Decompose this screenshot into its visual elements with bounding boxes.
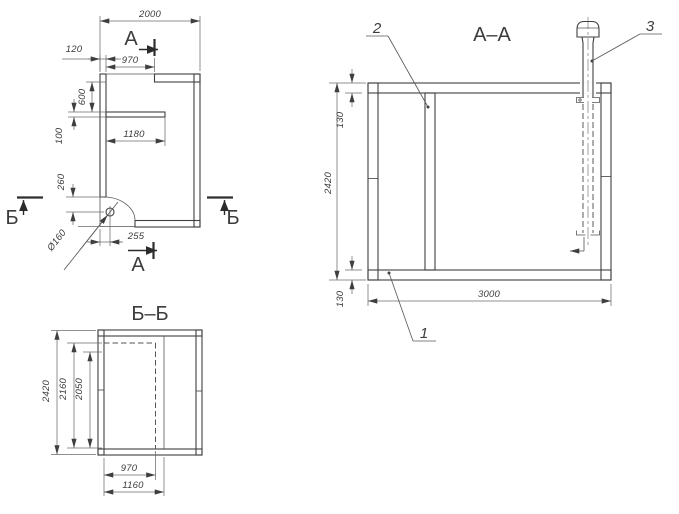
bb-left-wall — [98, 330, 104, 455]
callout-bottom-slab: 1 — [388, 272, 437, 343]
plan-dim-overall-width: 2000 — [138, 9, 161, 20]
plan-top-wall — [155, 74, 201, 82]
section-b-marker-right: Б — [207, 198, 240, 230]
technical-drawing: Ø160 2000 120 970 600 100 1180 — [0, 0, 679, 514]
callout-1-label: 1 — [420, 325, 428, 342]
section-letter-a-top: А — [124, 28, 138, 50]
bb-bottom-wall — [98, 449, 202, 455]
aa-dim-total-width: 3000 — [478, 289, 500, 300]
aa-dim-wall-bottom: 130 — [335, 290, 346, 307]
plan-dim-door-width: 970 — [122, 55, 139, 66]
section-b-marker-left: Б — [5, 198, 43, 230]
plan-dim-chimney-diameter: Ø160 — [45, 227, 69, 254]
bb-dim-opening-width: 970 — [121, 463, 138, 474]
chimney-leader-arrow — [80, 215, 108, 250]
aa-right-wall — [601, 83, 611, 280]
aa-bottom-wall — [368, 270, 611, 280]
section-letter-a-bottom: А — [131, 254, 145, 276]
plan-dim-partition-thickness: 100 — [54, 127, 65, 144]
section-letter-b-left: Б — [5, 207, 18, 229]
aa-partition — [425, 93, 435, 270]
plan-dim-chimney-offset-h: 255 — [127, 231, 145, 242]
aa-left-wall — [368, 83, 378, 280]
plan-bottom-wall — [135, 221, 200, 228]
callout-2-label: 2 — [372, 20, 382, 37]
bb-dim-total-height: 2420 — [41, 380, 52, 403]
section-letter-b-right: Б — [226, 207, 239, 229]
bb-dim-opening-height-outer: 2160 — [58, 378, 69, 401]
aa-dim-wall-top: 130 — [335, 111, 346, 128]
section-bb-view: Б–Б 2420 2160 2050 970 1160 — [41, 303, 202, 496]
bb-top-wall — [98, 330, 202, 336]
bb-dim-opening-height-inner: 2050 — [74, 378, 85, 401]
vent-clamp-left — [577, 98, 585, 103]
plan-view: Ø160 2000 120 970 600 100 1180 — [5, 9, 239, 276]
vent-pipe — [570, 17, 600, 251]
drawing-sheet: Ø160 2000 120 970 600 100 1180 — [0, 0, 679, 514]
section-a-marker-top: А — [124, 28, 158, 56]
callout-3-label: 3 — [646, 18, 655, 35]
section-aa-title: А–А — [473, 24, 511, 46]
vent-clamp-right — [592, 98, 600, 103]
section-a-marker-bottom: А — [128, 242, 157, 276]
section-aa-view: А–А — [323, 17, 662, 342]
bb-right-wall — [196, 330, 202, 455]
plan-right-wall — [194, 74, 200, 227]
section-bb-title: Б–Б — [131, 303, 168, 325]
plan-dim-partition-length: 1180 — [123, 129, 145, 140]
plan-dim-room-depth: 600 — [77, 88, 88, 105]
bb-dim-opening-width-outer: 1160 — [122, 480, 144, 491]
plan-dim-wall-offset: 120 — [66, 44, 83, 55]
plan-dim-chimney-offset-v: 260 — [56, 173, 67, 191]
callout-vent-pipe: 3 — [591, 18, 663, 63]
plan-left-wall — [100, 74, 106, 197]
aa-dim-total-height: 2420 — [323, 172, 334, 195]
plan-corner-outline — [100, 197, 135, 227]
callout-partition: 2 — [366, 20, 430, 109]
aa-top-wall — [368, 83, 611, 93]
plan-partition — [106, 112, 165, 117]
